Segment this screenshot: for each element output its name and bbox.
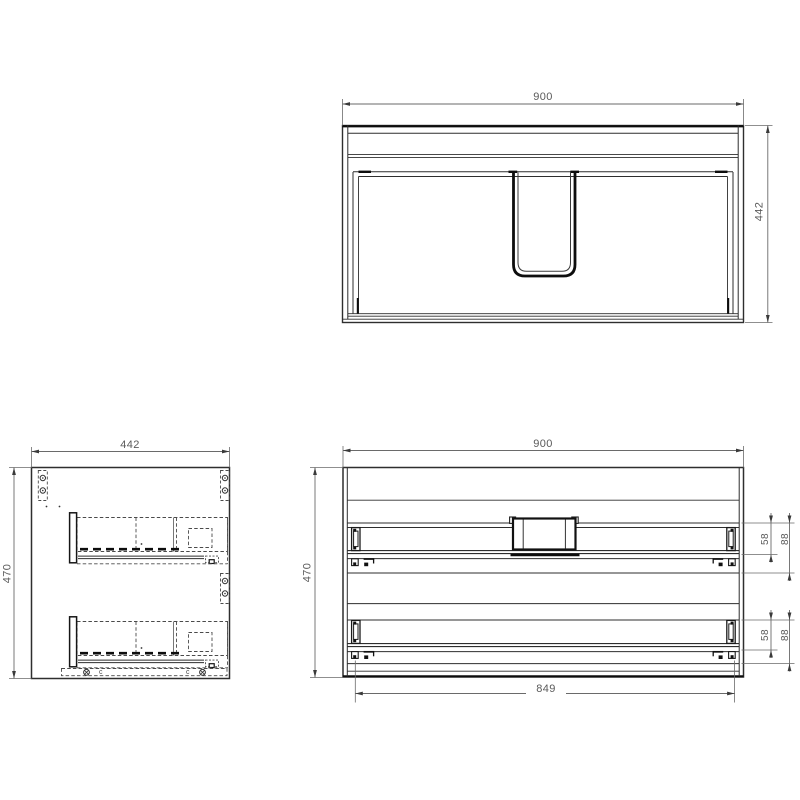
lower-slide-rail-label: 58 (760, 623, 772, 647)
side-view-width-label: 442 (100, 439, 160, 452)
sink-cutout-u-shape (514, 173, 576, 277)
top-view-width-label: 900 (513, 91, 573, 104)
sink-recess-box (510, 517, 580, 555)
front-view (310, 446, 795, 703)
side-view-height-label: 470 (2, 553, 15, 593)
side-view-hardware (38, 471, 229, 676)
dim-front-slide-span (355, 661, 734, 703)
top-view-depth-label: 442 (754, 191, 767, 231)
side-view-marker-c-left: c (96, 669, 106, 677)
side-view-bottom-band (62, 669, 228, 676)
drawing-linework (0, 0, 800, 800)
upper-slide-clearance-label: 88 (780, 527, 792, 551)
technical-drawing-canvas: 900 442 442 470 c c 900 470 849 58 88 58… (0, 0, 800, 800)
front-view-outline (343, 468, 744, 678)
top-view (343, 99, 773, 323)
front-view-width-label: 900 (513, 438, 573, 451)
front-view-slide-span-label: 849 (526, 683, 566, 696)
side-view (9, 447, 230, 679)
side-view-outline (32, 468, 230, 679)
dim-front-height (310, 468, 343, 678)
lower-slide-clearance-label: 88 (780, 623, 792, 647)
upper-slide-rail-label: 58 (760, 527, 772, 551)
top-view-outline (343, 126, 744, 323)
side-view-marker-c-right: c (183, 669, 193, 677)
front-view-height-label: 470 (301, 553, 314, 593)
